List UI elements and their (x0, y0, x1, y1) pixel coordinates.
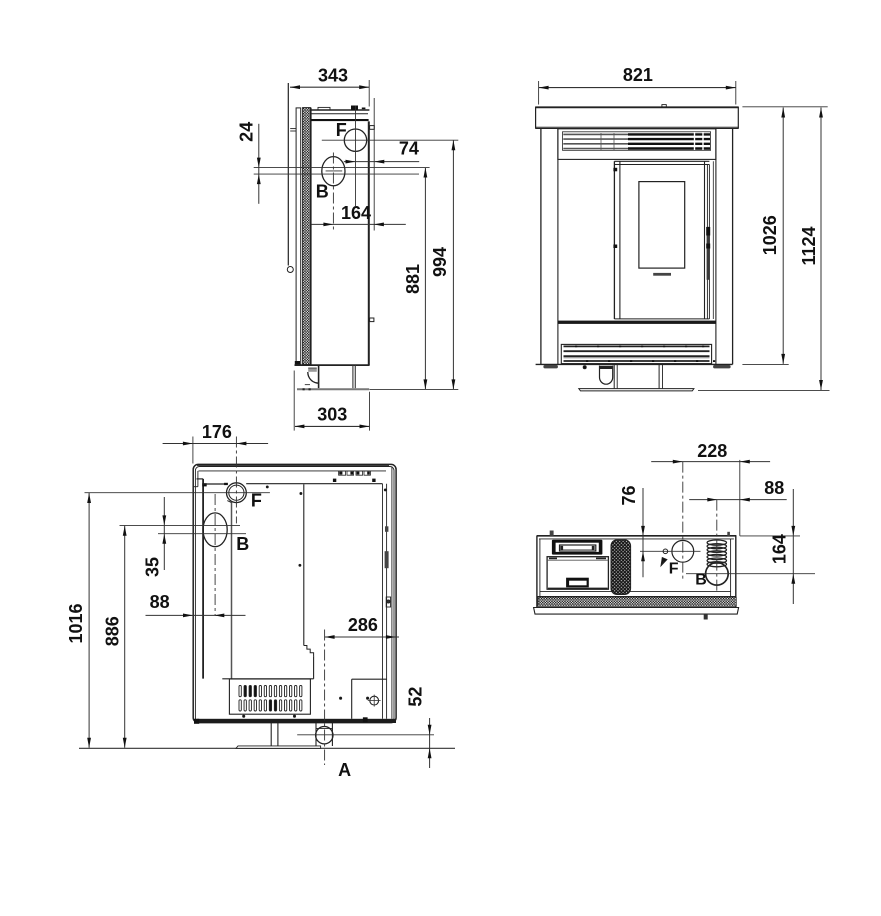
svg-text:B: B (236, 534, 249, 554)
svg-text:88: 88 (764, 478, 784, 498)
svg-text:B: B (695, 572, 707, 589)
svg-text:886: 886 (103, 616, 123, 646)
svg-text:881: 881 (403, 264, 423, 294)
svg-text:76: 76 (619, 485, 639, 505)
svg-text:343: 343 (318, 65, 348, 85)
svg-text:35: 35 (143, 557, 163, 577)
svg-text:1124: 1124 (799, 226, 819, 265)
svg-text:A: A (338, 760, 351, 780)
svg-text:994: 994 (430, 247, 450, 277)
svg-text:303: 303 (317, 404, 347, 424)
svg-text:1026: 1026 (760, 215, 780, 255)
svg-text:F: F (669, 561, 679, 578)
svg-text:164: 164 (341, 203, 371, 223)
svg-text:821: 821 (623, 65, 653, 85)
svg-text:F: F (336, 120, 347, 140)
svg-text:1016: 1016 (66, 603, 86, 643)
svg-text:F: F (251, 490, 262, 510)
svg-text:286: 286 (348, 615, 378, 635)
svg-text:24: 24 (237, 122, 257, 142)
svg-text:88: 88 (150, 592, 170, 612)
svg-text:B: B (316, 181, 329, 201)
svg-text:164: 164 (769, 534, 789, 564)
svg-text:228: 228 (697, 441, 727, 461)
svg-text:74: 74 (399, 139, 419, 159)
svg-text:52: 52 (405, 687, 425, 707)
svg-text:176: 176 (202, 422, 232, 442)
